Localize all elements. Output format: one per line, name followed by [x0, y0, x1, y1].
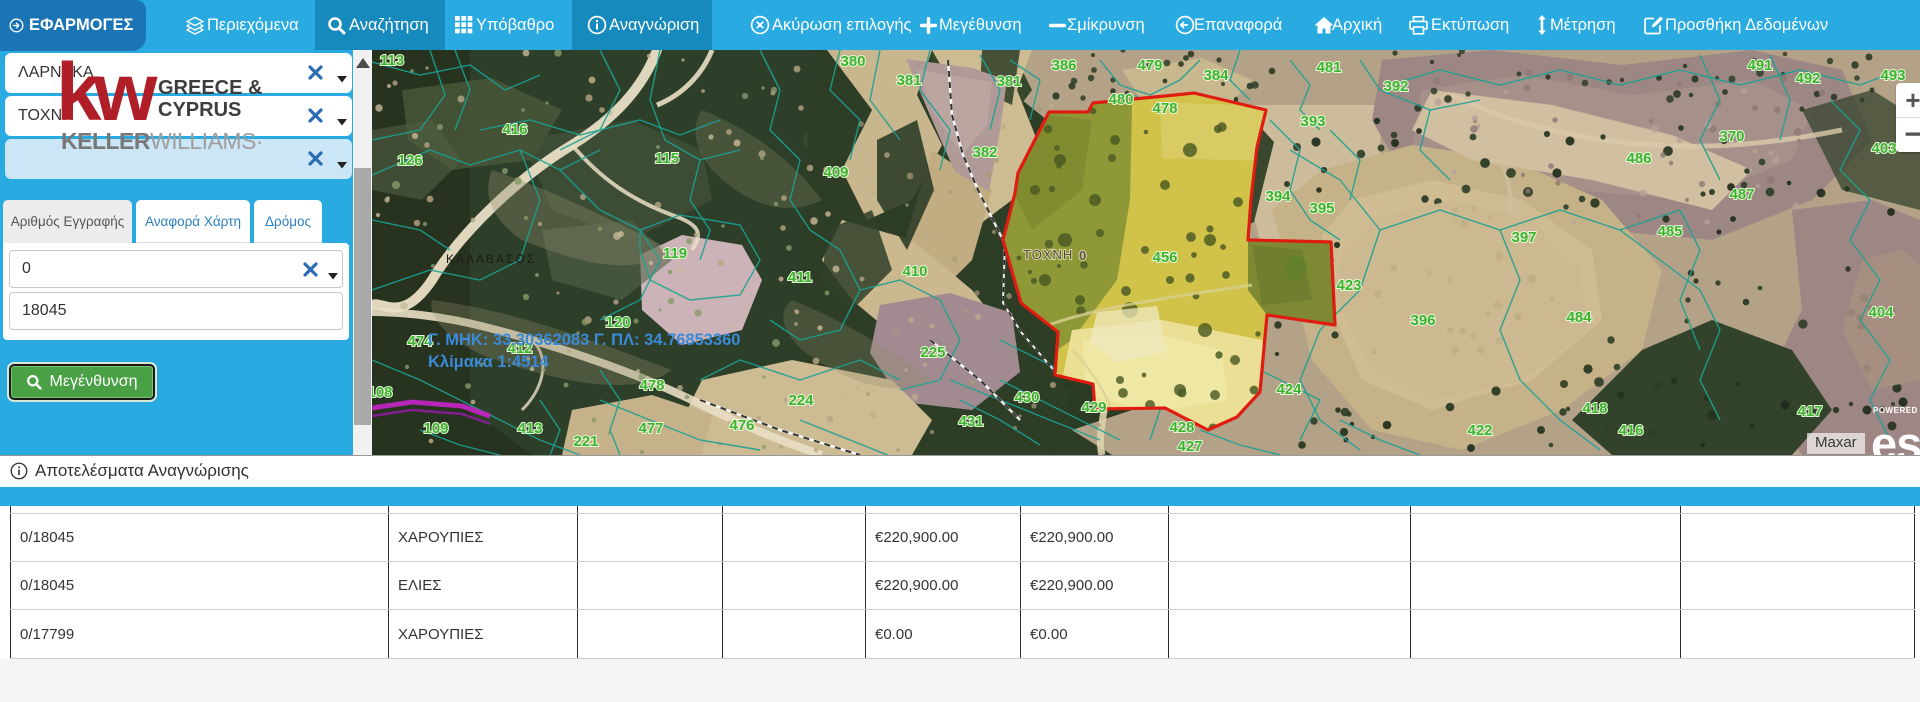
svg-text:486: 486	[1626, 150, 1651, 167]
svg-text:382: 382	[972, 144, 997, 161]
svg-text:429: 429	[1081, 399, 1106, 416]
svg-text:119: 119	[663, 245, 687, 262]
svg-text:491: 491	[1747, 57, 1772, 74]
svg-text:384: 384	[1203, 67, 1229, 84]
svg-text:476: 476	[729, 417, 754, 434]
svg-text:422: 422	[1467, 422, 1492, 439]
svg-text:113: 113	[380, 52, 404, 69]
svg-text:404: 404	[1868, 304, 1894, 321]
svg-text:409: 409	[823, 164, 848, 181]
svg-text:ΤΟΧΝΗ: ΤΟΧΝΗ	[1023, 247, 1073, 262]
svg-text:108: 108	[372, 384, 393, 401]
svg-text:493: 493	[1880, 67, 1905, 84]
svg-text:477: 477	[638, 420, 663, 437]
svg-text:ΚΑΛΑΒΑΣΟΣ: ΚΑΛΑΒΑΣΟΣ	[446, 252, 536, 266]
svg-text:478: 478	[639, 377, 664, 394]
svg-text:Γ. ΜΗΚ: 33.30362083 Γ. ΠΛ: 34.: Γ. ΜΗΚ: 33.30362083 Γ. ΠΛ: 34.76853360	[428, 331, 741, 349]
svg-text:456: 456	[1152, 249, 1177, 266]
svg-text:416: 416	[1618, 422, 1643, 439]
svg-text:423: 423	[1336, 277, 1361, 294]
svg-text:224: 224	[788, 392, 814, 409]
svg-text:403: 403	[1871, 140, 1896, 157]
svg-text:395: 395	[1309, 200, 1334, 217]
svg-text:411: 411	[788, 269, 812, 286]
svg-text:126: 126	[397, 152, 422, 169]
svg-text:413: 413	[517, 420, 542, 437]
svg-text:221: 221	[573, 433, 598, 450]
svg-text:487: 487	[1729, 186, 1754, 203]
svg-text:427: 427	[1177, 438, 1202, 455]
svg-text:478: 478	[1152, 100, 1177, 117]
svg-text:120: 120	[605, 314, 630, 331]
svg-text:417: 417	[1797, 403, 1822, 420]
svg-text:480: 480	[1108, 91, 1133, 108]
svg-text:380: 380	[840, 53, 865, 70]
svg-text:484: 484	[1566, 309, 1592, 326]
svg-text:418: 418	[1582, 400, 1607, 417]
svg-text:396: 396	[1410, 312, 1435, 329]
svg-text:485: 485	[1657, 223, 1682, 240]
svg-text:381: 381	[896, 72, 921, 89]
svg-text:397: 397	[1511, 229, 1536, 246]
svg-text:370: 370	[1719, 128, 1744, 145]
svg-text:393: 393	[1300, 113, 1325, 130]
svg-text:392: 392	[1383, 78, 1408, 95]
svg-text:479: 479	[1137, 57, 1162, 74]
svg-text:0: 0	[1079, 248, 1086, 263]
svg-text:492: 492	[1795, 70, 1820, 87]
svg-text:225: 225	[920, 344, 945, 361]
svg-text:386: 386	[1051, 57, 1076, 74]
svg-text:424: 424	[1276, 381, 1302, 398]
svg-text:410: 410	[902, 263, 927, 280]
svg-text:Κλίμακα 1:4514: Κλίμακα 1:4514	[428, 353, 549, 371]
svg-text:109: 109	[423, 420, 448, 437]
svg-text:381: 381	[996, 73, 1021, 90]
svg-text:481: 481	[1316, 59, 1341, 76]
svg-text:416: 416	[502, 121, 527, 138]
svg-text:431: 431	[958, 413, 983, 430]
svg-text:115: 115	[655, 150, 679, 167]
svg-text:430: 430	[1014, 389, 1039, 406]
svg-text:394: 394	[1265, 188, 1291, 205]
svg-text:428: 428	[1169, 419, 1194, 436]
